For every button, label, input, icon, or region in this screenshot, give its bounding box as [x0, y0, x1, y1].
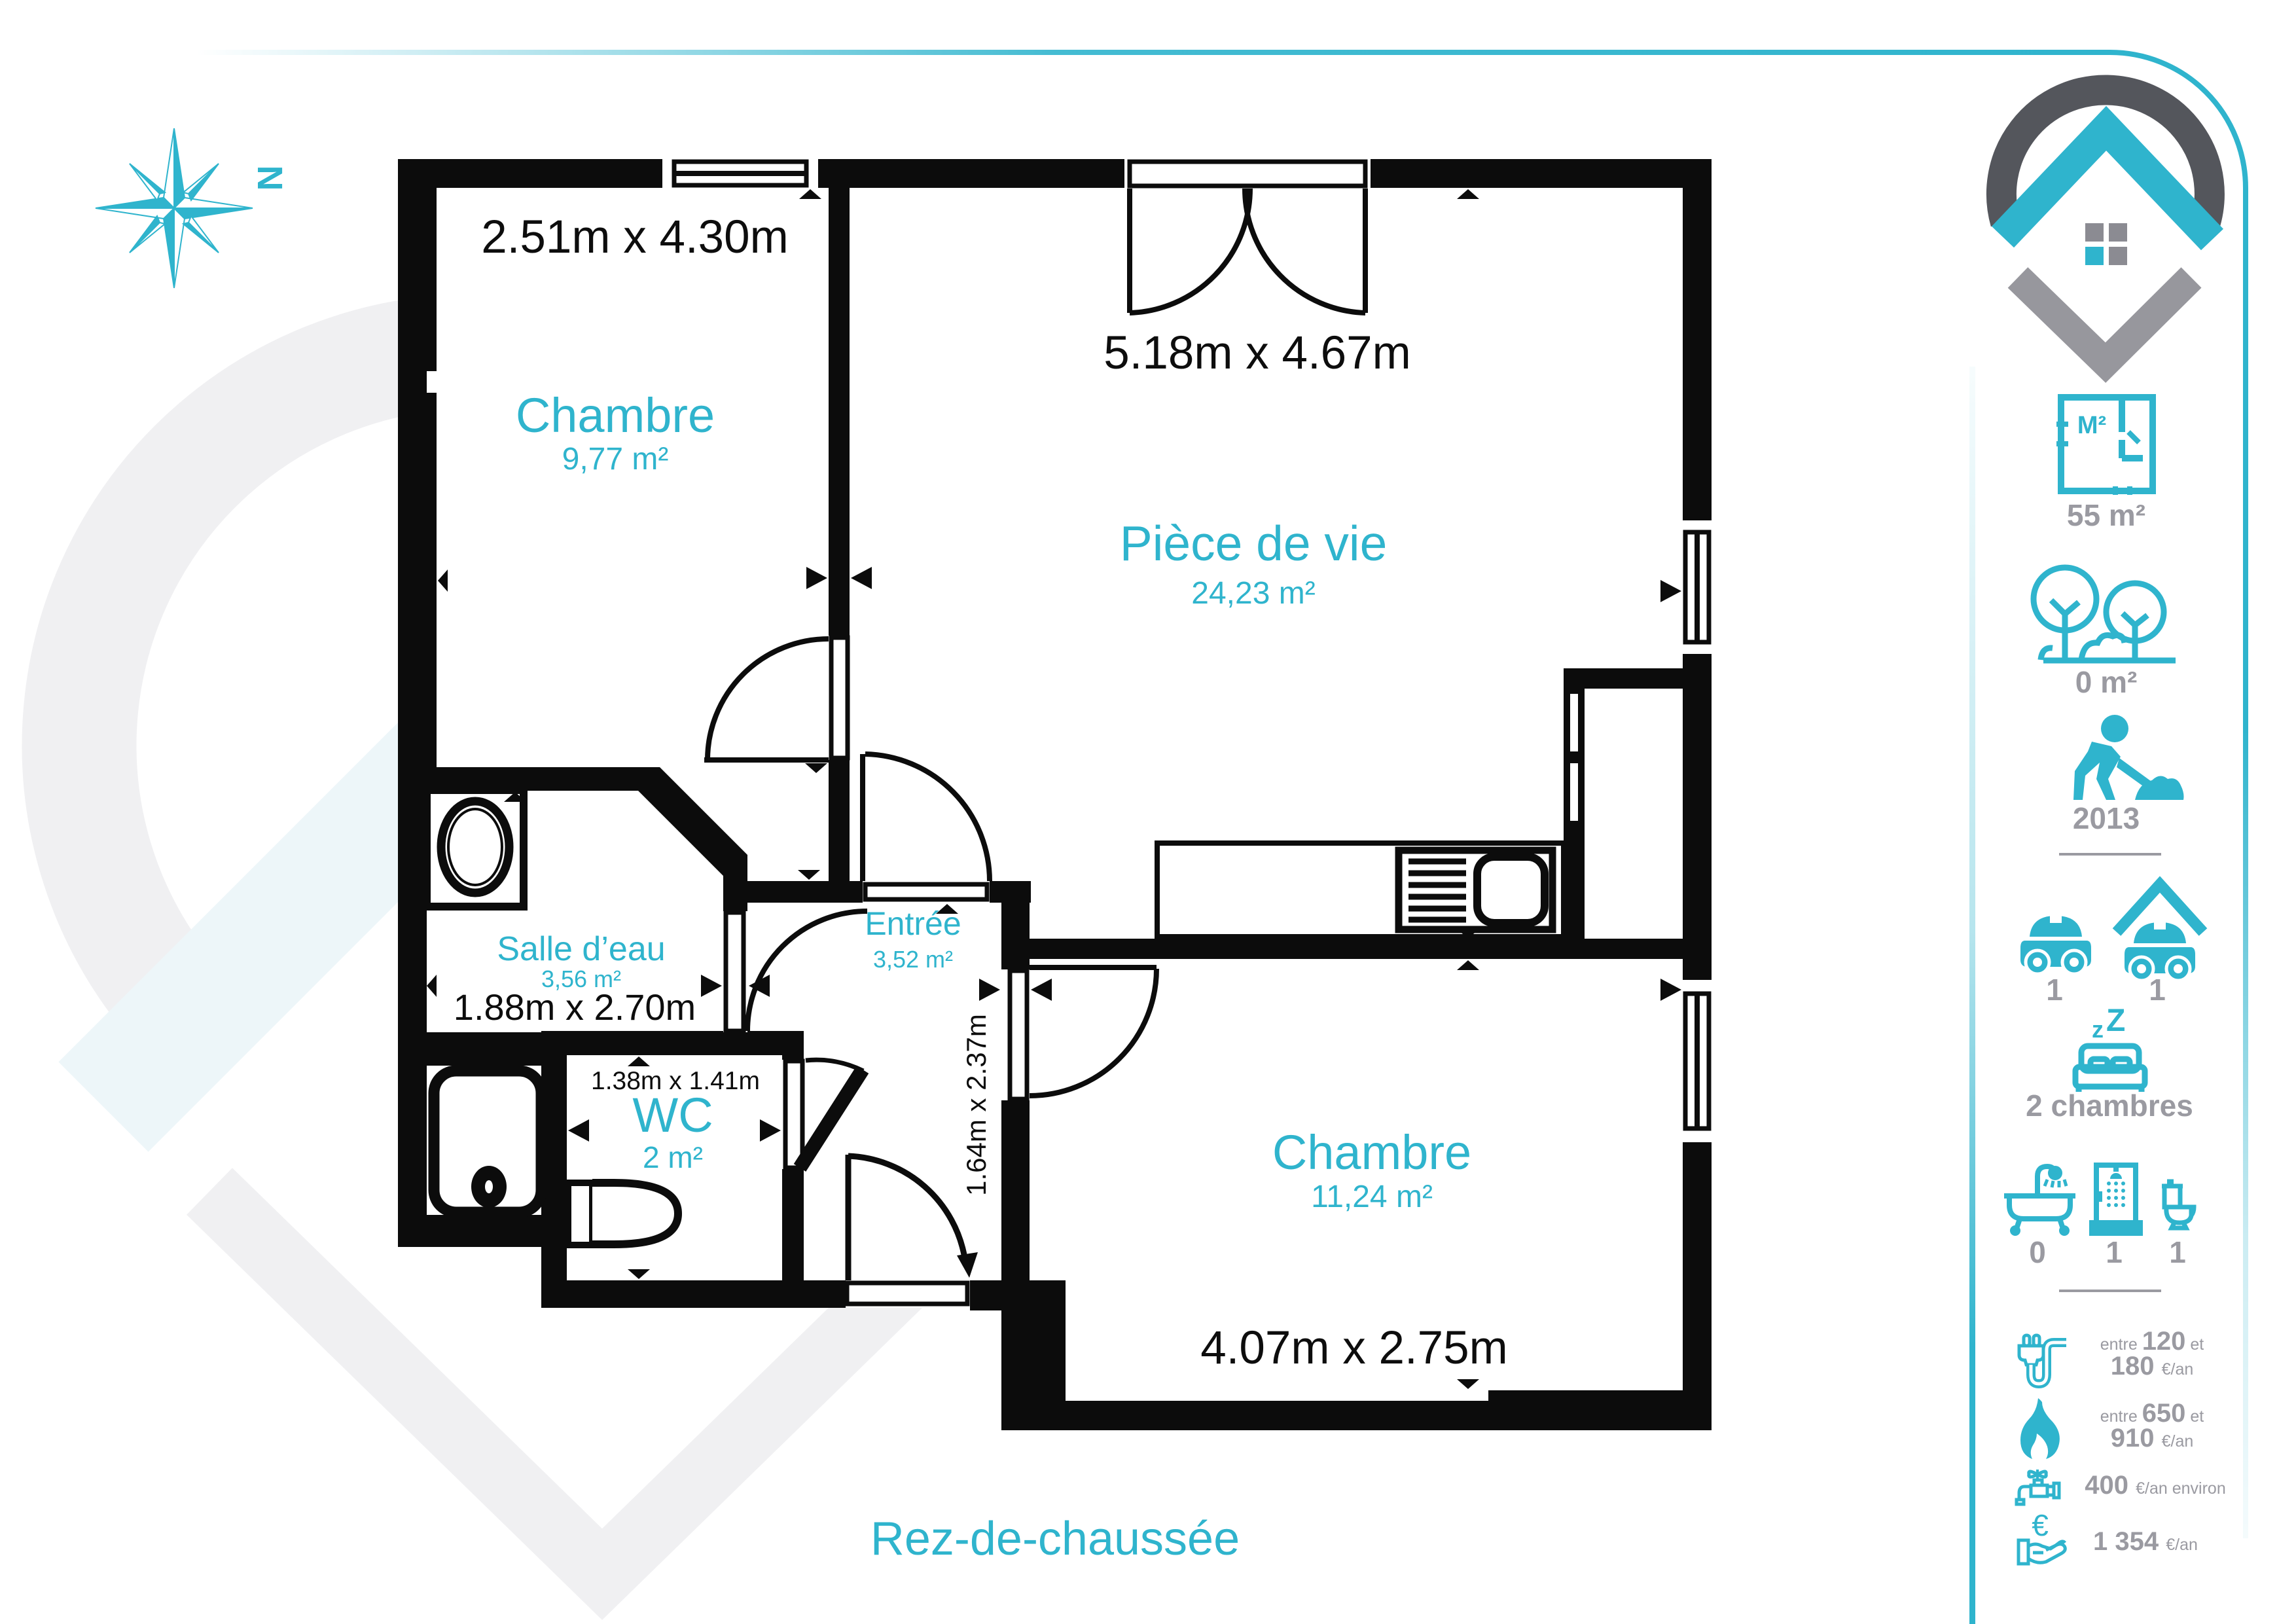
svg-text:1: 1 [2046, 973, 2063, 1007]
svg-text:1: 1 [2106, 1235, 2123, 1269]
svg-text:2 chambres: 2 chambres [2026, 1089, 2193, 1123]
svg-text:N: N [250, 166, 289, 191]
svg-text:M²: M² [2077, 412, 2106, 439]
svg-text:Z: Z [2106, 1003, 2125, 1038]
svg-text:9,77 m²: 9,77 m² [562, 442, 669, 477]
svg-text:1.64m x 2.37m: 1.64m x 2.37m [961, 1014, 992, 1196]
svg-text:1: 1 [2149, 973, 2166, 1007]
svg-text:24,23 m²: 24,23 m² [1191, 576, 1315, 611]
svg-text:Pièce de vie: Pièce de vie [1120, 516, 1388, 571]
svg-text:1: 1 [2169, 1235, 2186, 1269]
svg-text:4.07m x 2.75m: 4.07m x 2.75m [1200, 1322, 1508, 1374]
svg-text:1.88m x 2.70m: 1.88m x 2.70m [454, 986, 696, 1028]
svg-text:11,24 m²: 11,24 m² [1311, 1180, 1433, 1214]
svg-text:2013: 2013 [2073, 801, 2140, 835]
svg-text:Chambre: Chambre [516, 388, 715, 442]
svg-text:55 m²: 55 m² [2067, 498, 2145, 532]
svg-text:5.18m x 4.67m: 5.18m x 4.67m [1103, 327, 1411, 379]
svg-text:Entrée: Entrée [865, 905, 961, 942]
svg-text:Chambre: Chambre [1272, 1125, 1471, 1180]
svg-text:Rez-de-chaussée: Rez-de-chaussée [870, 1513, 1240, 1565]
svg-text:0 m²: 0 m² [2075, 665, 2138, 699]
svg-text:2.51m x 4.30m: 2.51m x 4.30m [481, 211, 789, 263]
svg-text:2 m²: 2 m² [643, 1140, 703, 1174]
svg-text:WC: WC [632, 1088, 713, 1142]
svg-text:Salle d’eau: Salle d’eau [497, 930, 665, 968]
svg-text:z: z [2092, 1016, 2104, 1043]
svg-text:3,52 m²: 3,52 m² [873, 946, 953, 973]
svg-text:€: € [2032, 1508, 2049, 1542]
svg-text:0: 0 [2029, 1235, 2046, 1269]
